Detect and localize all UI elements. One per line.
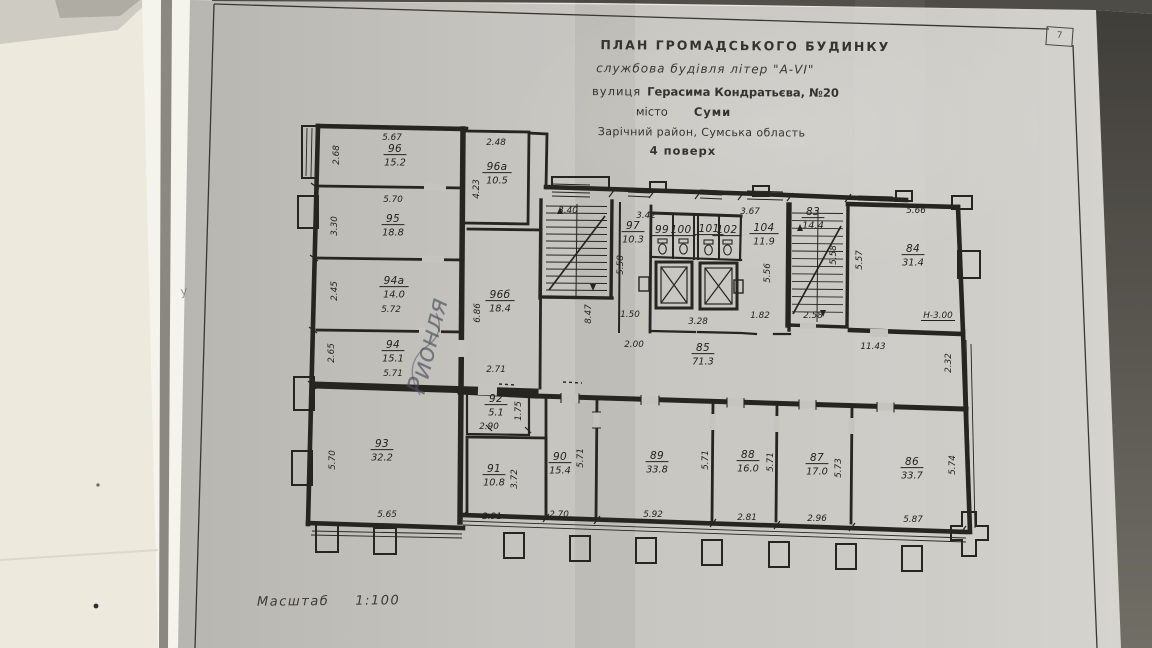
dimension-label: 2.70 bbox=[549, 510, 569, 520]
room-number: 94 bbox=[386, 339, 400, 351]
floor-plan-drawing: 9615.296а10.59518.894а14.096б18.49415.19… bbox=[0, 0, 1152, 648]
room-area: 32.2 bbox=[371, 453, 393, 464]
dimension-label: 5.57 bbox=[855, 250, 865, 270]
scale-note: Масштаб1:100 bbox=[257, 593, 400, 609]
dimension-label: 11.43 bbox=[860, 342, 886, 352]
stair-tread bbox=[546, 269, 607, 270]
dimension-label: 2.00 bbox=[624, 340, 644, 350]
room-area: 33.7 bbox=[901, 471, 924, 482]
room-number: 100 bbox=[671, 224, 692, 236]
dimension-label: 2.90 bbox=[479, 422, 499, 432]
dimension-label: 5.87 bbox=[903, 515, 923, 525]
dimension-label: 5.65 bbox=[377, 510, 397, 520]
room-area: 15.1 bbox=[382, 354, 404, 365]
district-line: Зарічний район, Сумська область bbox=[598, 126, 852, 139]
photo-of-floor-plan: 9615.296а10.59518.894а14.096б18.49415.19… bbox=[0, 0, 1152, 648]
room-area: 5.1 bbox=[488, 408, 504, 419]
stair-tread bbox=[546, 255, 607, 256]
dimension-label: 5.74 bbox=[948, 455, 958, 475]
room-area: 10.8 bbox=[483, 478, 505, 489]
dimension-label: 3.42 bbox=[636, 211, 656, 221]
room-area: 17.0 bbox=[806, 467, 828, 478]
room-area: 14.0 bbox=[383, 290, 405, 301]
stair-tread bbox=[546, 220, 607, 221]
room-area: 14.4 bbox=[802, 221, 824, 232]
room-number: 104 bbox=[754, 222, 775, 234]
room-label-102: 102 bbox=[712, 224, 741, 236]
city-line: містоСуми bbox=[636, 106, 852, 119]
dimension-label: 2.65 bbox=[327, 343, 337, 363]
dimension-label: 2.91 bbox=[482, 512, 502, 522]
dimension-label: 5.72 bbox=[381, 305, 401, 315]
dimension-label: 5.92 bbox=[643, 510, 663, 520]
stair-tread bbox=[546, 276, 607, 277]
room-area: 33.8 bbox=[646, 465, 668, 476]
room-number: 102 bbox=[717, 224, 738, 236]
stair-tread bbox=[546, 234, 607, 235]
room-number: 95 bbox=[386, 213, 400, 225]
dimension-label: 5.70 bbox=[328, 450, 338, 470]
dimension-label: 3.72 bbox=[510, 469, 520, 489]
floor-line: 4 поверх bbox=[650, 145, 852, 158]
dimension-label: 5.66 bbox=[906, 206, 926, 216]
dimension-label: 8.47 bbox=[584, 304, 594, 324]
room-number: 88 bbox=[741, 449, 755, 461]
frame-corner-mark: 7 bbox=[1045, 26, 1073, 47]
stair-tread bbox=[546, 262, 607, 263]
dimension-label: 2.58 bbox=[803, 311, 823, 321]
dimension-label: 3.67 bbox=[740, 207, 760, 217]
room-number: 96б bbox=[490, 289, 511, 301]
room-area: 15.2 bbox=[384, 158, 406, 169]
dimension-label: 5.56 bbox=[763, 263, 773, 283]
room-number: 89 bbox=[650, 450, 664, 462]
room-area: 31.4 bbox=[902, 258, 924, 269]
dimension-label: 5.71 bbox=[766, 452, 776, 472]
dimension-label: 2.81 bbox=[737, 513, 757, 523]
dimension-label: 2.48 bbox=[486, 138, 506, 148]
scale-value: 1:100 bbox=[355, 593, 400, 608]
room-number: 99 bbox=[655, 224, 669, 236]
dimension-label: Н-3.00 bbox=[923, 311, 953, 321]
dimension-label: 2.45 bbox=[330, 281, 340, 301]
dimension-label: 1.75 bbox=[514, 401, 524, 421]
room-number: 83 bbox=[806, 206, 820, 218]
room-number: 91 bbox=[487, 463, 501, 475]
dimension-label: 5.67 bbox=[382, 133, 402, 143]
room-area: 15.4 bbox=[549, 466, 571, 477]
dimension-label: 1.82 bbox=[750, 311, 770, 321]
room-number: 87 bbox=[810, 452, 824, 464]
room-area: 16.0 bbox=[737, 464, 759, 475]
plan-subtitle: службова будівля літер "А-VI" bbox=[596, 62, 852, 76]
room-number: 96а bbox=[487, 161, 508, 173]
stair-tread bbox=[546, 248, 607, 249]
street-line: вулицяГерасима Кондратьєва, №20 bbox=[592, 86, 852, 99]
room-area: 10.3 bbox=[622, 235, 644, 246]
room-number: 93 bbox=[375, 438, 389, 450]
street-label: вулиця bbox=[592, 84, 641, 98]
dimension-label: 2.96 bbox=[807, 514, 827, 524]
stair-tread bbox=[792, 289, 843, 290]
stair-tread bbox=[792, 266, 843, 267]
dimension-label: 3.40 bbox=[558, 206, 578, 216]
city-label: місто bbox=[636, 104, 668, 118]
room-number: 97 bbox=[626, 220, 640, 232]
title-block: ПЛАН ГРОМАДСЬКОГО БУДИНКУ службова будів… bbox=[592, 39, 853, 158]
room-number: 94а bbox=[384, 275, 405, 287]
scale-label: Масштаб bbox=[257, 594, 329, 610]
plan-title: ПЛАН ГРОМАДСЬКОГО БУДИНКУ bbox=[600, 39, 852, 53]
room-number: 90 bbox=[553, 451, 567, 463]
stair-tread bbox=[792, 297, 843, 298]
stair-tread bbox=[792, 274, 843, 275]
dimension-label: 2.71 bbox=[486, 365, 506, 375]
stair-tread bbox=[546, 241, 607, 242]
stair-tread bbox=[792, 243, 843, 244]
dimension-label: 6.86 bbox=[473, 303, 483, 323]
room-number: 92 bbox=[489, 393, 503, 405]
city-value: Суми bbox=[694, 105, 732, 119]
street-value: Герасима Кондратьєва, №20 bbox=[647, 84, 839, 99]
room-number: 85 bbox=[696, 342, 710, 354]
room-area: 18.4 bbox=[489, 304, 511, 315]
stair-tread bbox=[546, 283, 607, 284]
room-number: 96 bbox=[388, 143, 402, 155]
room-number: 84 bbox=[906, 243, 920, 255]
dimension-label: 5.58 bbox=[829, 245, 839, 265]
dimension-label: 3.30 bbox=[330, 216, 340, 236]
dimension-label: 5.71 bbox=[576, 448, 586, 468]
dimension-label: 2.32 bbox=[944, 353, 954, 373]
room-area: 71.3 bbox=[692, 357, 714, 368]
dimension-label: 5.73 bbox=[834, 458, 844, 478]
stair-tread bbox=[792, 304, 843, 305]
dimension-label: 2.68 bbox=[332, 145, 342, 165]
room-area: 11.9 bbox=[753, 237, 775, 248]
stair-tread bbox=[792, 236, 843, 237]
dimension-label: 5.71 bbox=[383, 369, 403, 379]
stair-tread bbox=[792, 281, 843, 282]
room-area: 18.8 bbox=[382, 228, 404, 239]
dimension-label: 5.58 bbox=[616, 255, 626, 275]
room-number: 86 bbox=[905, 456, 919, 468]
dimension-label: 1.50 bbox=[620, 310, 640, 320]
dimension-label: 3.28 bbox=[688, 317, 708, 327]
dimension-label: 4.23 bbox=[472, 179, 482, 199]
dimension-label: 5.70 bbox=[383, 195, 403, 205]
dimension-label: 5.71 bbox=[701, 450, 711, 470]
stair-tread bbox=[546, 227, 607, 228]
photo-background bbox=[0, 0, 1152, 648]
room-area: 10.5 bbox=[486, 176, 508, 187]
room-label-100: 100 bbox=[666, 224, 695, 236]
stair-tread bbox=[546, 290, 607, 291]
